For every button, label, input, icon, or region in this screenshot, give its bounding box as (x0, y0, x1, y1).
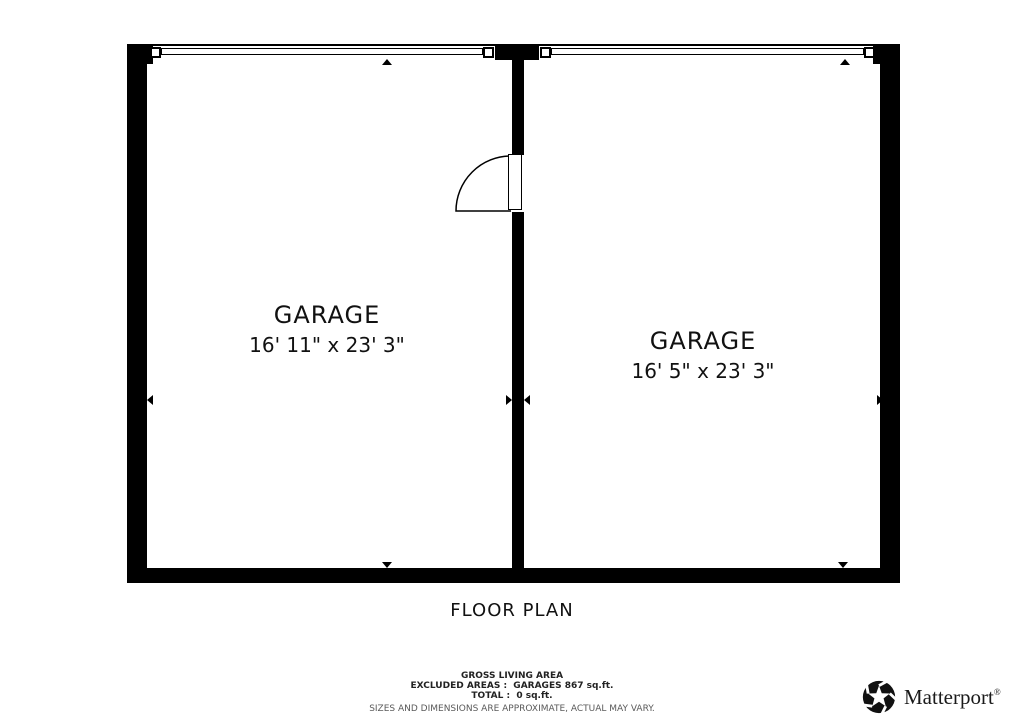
dimension-arrow-right-icon (877, 395, 883, 405)
garage-door-jamb (540, 47, 551, 58)
garage-door-jamb (150, 47, 161, 58)
dimension-arrow-up-icon (382, 59, 392, 65)
garage-door-panel-right (551, 48, 864, 55)
dimension-arrow-down-icon (838, 562, 848, 568)
door-leaf (508, 154, 522, 210)
matterport-pinwheel-icon (860, 678, 898, 716)
matterport-logo: Matterport® (860, 678, 1001, 716)
room-label-garage-right: GARAGE 16' 5" x 23' 3" (583, 327, 823, 383)
room-name: GARAGE (583, 327, 823, 355)
registered-mark: ® (994, 687, 1001, 697)
dimension-arrow-right-icon (506, 395, 512, 405)
garage-door-header-line (147, 44, 880, 46)
wall-middle-upper (512, 44, 524, 155)
garage-door-panel-left (161, 48, 483, 55)
room-name: GARAGE (207, 301, 447, 329)
wall-bottom (127, 568, 900, 583)
garage-door-jamb (483, 47, 494, 58)
page-title: FLOOR PLAN (0, 600, 1024, 621)
room-dimensions: 16' 5" x 23' 3" (583, 359, 823, 383)
brand-name: Matterport (904, 685, 994, 709)
wall-left (127, 44, 147, 583)
dimension-arrow-up-icon (840, 59, 850, 65)
floor-plan-canvas: GARAGE 16' 11" x 23' 3" GARAGE 16' 5" x … (0, 0, 1024, 724)
dimension-arrow-left-icon (147, 395, 153, 405)
wall-right (880, 44, 900, 583)
matterport-wordmark: Matterport® (904, 685, 1001, 710)
room-label-garage-left: GARAGE 16' 11" x 23' 3" (207, 301, 447, 357)
garage-door-jamb (864, 47, 875, 58)
door-swing-arc (454, 154, 514, 216)
dimension-arrow-down-icon (382, 562, 392, 568)
wall-center-top-block (495, 44, 539, 60)
wall-corner-top-right (873, 44, 900, 64)
dimension-arrow-left-icon (524, 395, 530, 405)
room-dimensions: 16' 11" x 23' 3" (207, 333, 447, 357)
wall-middle-lower (512, 212, 524, 568)
